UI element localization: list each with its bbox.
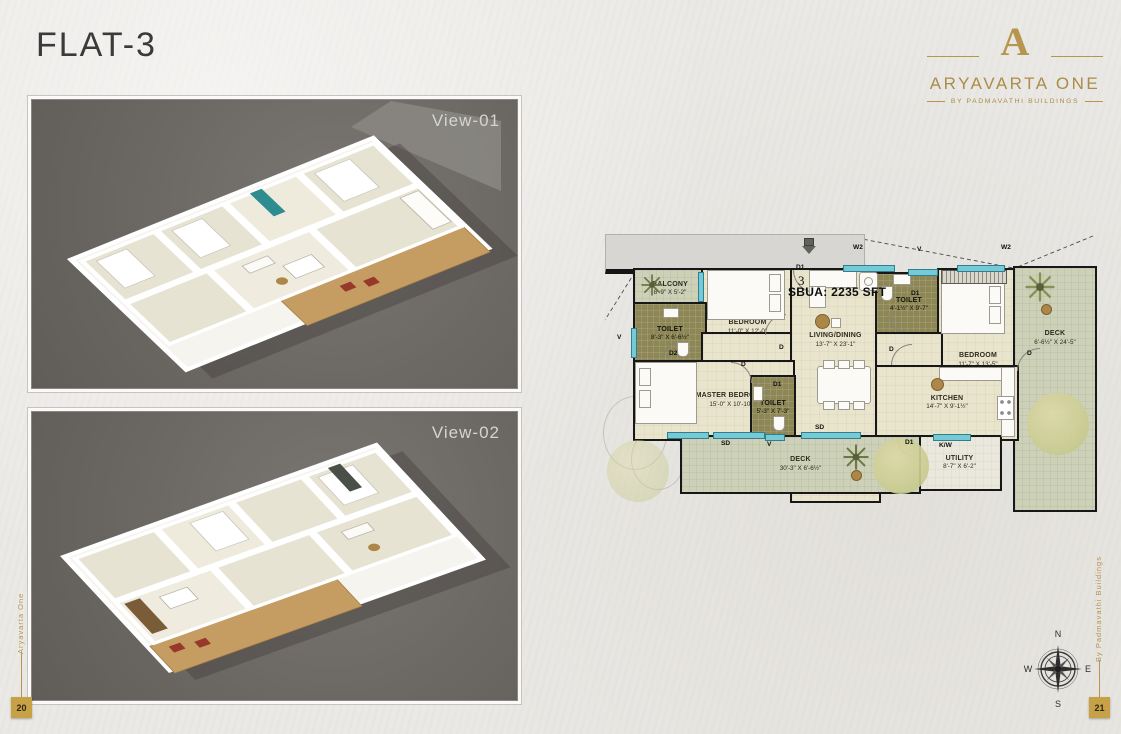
palm-plant-icon bbox=[1025, 272, 1055, 302]
marker-d: D bbox=[741, 361, 746, 368]
dining-table bbox=[817, 366, 871, 404]
brand-monogram-icon: A bbox=[925, 16, 1105, 68]
view-02-3d-render bbox=[31, 411, 524, 707]
view-02-panel: View-02 bbox=[28, 408, 521, 704]
pillow bbox=[989, 286, 1001, 304]
room-dims: 6'-6½" X 24'-5" bbox=[1034, 339, 1076, 347]
marker-d: D bbox=[779, 344, 784, 351]
page-number-left: 20 bbox=[11, 697, 32, 718]
dining-chair bbox=[853, 360, 865, 369]
room-dims: 4'-1½" X 9'-7" bbox=[890, 305, 928, 313]
sink-toilet-3 bbox=[753, 386, 763, 401]
dining-chair bbox=[838, 360, 850, 369]
round-table bbox=[815, 314, 830, 329]
room-deck-right: DECK 6'-6½" X 24'-5" bbox=[1013, 266, 1097, 512]
window-v-left bbox=[631, 328, 637, 358]
brand-tagline-row: BY PADMAVATHI BUILDINGS bbox=[925, 98, 1105, 105]
marker-d1: D1 bbox=[773, 381, 781, 388]
room-dims: 15'-0" X 10'-10" bbox=[709, 401, 752, 409]
marker-v: V bbox=[617, 334, 621, 341]
brand-logo: A ARYAVARTA ONE BY PADMAVATHI BUILDINGS bbox=[925, 16, 1105, 105]
basket bbox=[931, 378, 944, 391]
logo-left-line bbox=[927, 56, 979, 57]
floor-plan: BALCONY 8'-9" X 5'-2" BEDROOM 11'-0" X 1… bbox=[605, 228, 1098, 505]
marker-d1: D1 bbox=[905, 439, 913, 446]
entry-arrow-icon bbox=[802, 238, 816, 254]
sbua-area-label: SBUA: 2235 SFT bbox=[788, 285, 906, 299]
compass-north: N bbox=[1055, 629, 1062, 639]
window-kw bbox=[933, 434, 971, 441]
brand-tagline: BY PADMAVATHI BUILDINGS bbox=[951, 98, 1079, 105]
room-dims: 13'-7" X 23'-1" bbox=[816, 341, 856, 349]
left-margin-line bbox=[21, 652, 22, 697]
room-label: BEDROOM bbox=[959, 352, 997, 361]
marker-d2: D2 bbox=[669, 350, 677, 357]
view-01-panel: View-01 bbox=[28, 96, 521, 392]
room-utility: UTILITY 8'-7" X 6'-2" bbox=[917, 435, 1002, 491]
sink-toilet-1 bbox=[663, 308, 679, 318]
marker-sd: SD bbox=[721, 440, 730, 447]
marker-d: D bbox=[889, 346, 894, 353]
page-title: FLAT-3 bbox=[36, 26, 157, 65]
room-label: UTILITY bbox=[946, 455, 974, 464]
room-dims: 30'-3" X 6'-6½" bbox=[780, 465, 822, 473]
wc-toilet-1 bbox=[677, 342, 689, 357]
view-01-3d-render bbox=[31, 99, 524, 395]
brand-name: ARYAVARTA ONE bbox=[925, 74, 1105, 94]
dining-chair bbox=[853, 401, 865, 410]
right-margin-line bbox=[1099, 660, 1100, 697]
compass-rose-icon: N S W E bbox=[1022, 626, 1094, 710]
room-label: DECK bbox=[790, 456, 811, 465]
room-label: DECK bbox=[1045, 330, 1066, 339]
window-v-bottom bbox=[765, 434, 785, 441]
plant-pot bbox=[851, 470, 862, 481]
compass-west: W bbox=[1024, 664, 1033, 674]
window-master bbox=[667, 432, 709, 439]
marker-w2: W2 bbox=[1001, 244, 1011, 251]
marker-d1: D1 bbox=[911, 290, 919, 297]
marker-sd: SD bbox=[815, 424, 824, 431]
pillow bbox=[639, 390, 651, 408]
brand-monogram-wrap: A bbox=[925, 16, 1105, 72]
chair bbox=[831, 318, 841, 328]
bush-faded bbox=[607, 440, 669, 502]
marker-v: V bbox=[767, 441, 771, 448]
palm-plant-icon bbox=[843, 444, 869, 470]
room-label: TOILET bbox=[760, 400, 786, 409]
left-margin-brand-text: Aryavarta One bbox=[16, 592, 25, 654]
logo-right-line bbox=[1051, 56, 1103, 57]
view-02-label: View-02 bbox=[432, 423, 500, 443]
dining-chair bbox=[823, 360, 835, 369]
right-margin-brand-text: By Padmavathi Buildings bbox=[1094, 582, 1103, 662]
window-v-top bbox=[908, 269, 938, 276]
window-sd-1 bbox=[713, 432, 765, 439]
marker-d: D bbox=[1027, 350, 1032, 357]
wc-toilet-3 bbox=[773, 416, 785, 431]
compass-east: E bbox=[1085, 664, 1091, 674]
page-number-right: 21 bbox=[1089, 697, 1110, 718]
bush bbox=[873, 438, 929, 494]
plant-pot bbox=[1041, 304, 1052, 315]
marker-kw: K/W bbox=[939, 442, 952, 449]
marker-v: V bbox=[917, 246, 921, 253]
dining-chair bbox=[823, 401, 835, 410]
wardrobe-louver bbox=[941, 270, 1007, 284]
window-w2-a bbox=[843, 265, 895, 272]
window-sd-2 bbox=[801, 432, 861, 439]
room-label: BEDROOM bbox=[729, 319, 767, 328]
dining-chair bbox=[838, 401, 850, 410]
pillow bbox=[769, 274, 781, 292]
marker-d1-entrance: D1 bbox=[796, 264, 804, 271]
pillow bbox=[989, 306, 1001, 324]
bush bbox=[1027, 393, 1089, 455]
room-dims: 8'-7" X 6'-2" bbox=[943, 463, 976, 471]
room-dims: 14'-7" X 9'-1½" bbox=[926, 403, 968, 411]
window-w2-b bbox=[957, 265, 1005, 272]
window-balcony bbox=[698, 272, 704, 302]
room-label: LIVING/DINING bbox=[809, 332, 861, 341]
pillow bbox=[769, 294, 781, 312]
view-01-label: View-01 bbox=[432, 111, 500, 131]
pillow bbox=[639, 368, 651, 386]
marker-w2: W2 bbox=[853, 244, 863, 251]
compass-south: S bbox=[1055, 699, 1061, 709]
palm-plant-icon bbox=[641, 274, 663, 296]
stove-burners bbox=[997, 396, 1014, 420]
